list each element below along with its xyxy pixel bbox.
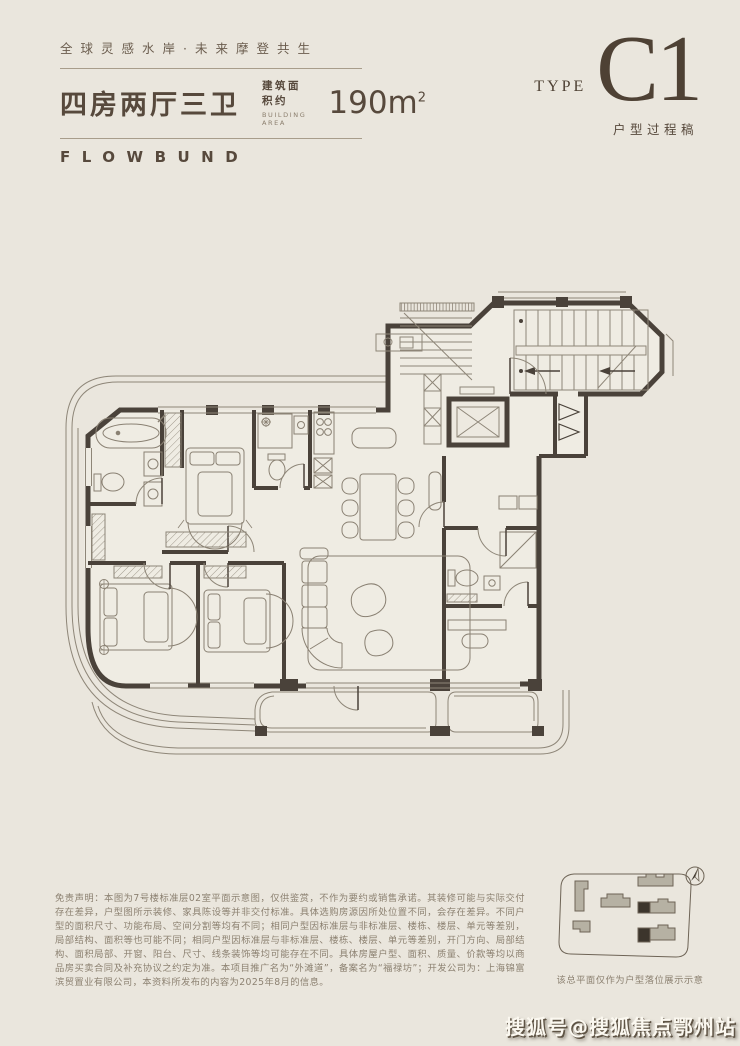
- divider-rule-bottom: [60, 138, 362, 139]
- unit-title: 四房两厅三卫: [60, 83, 240, 122]
- divider-rule-top: [60, 68, 362, 69]
- area-label-cn: 建筑面积约: [262, 78, 306, 108]
- balcony: [255, 692, 538, 732]
- building-5: [650, 899, 675, 913]
- type-value: C1: [596, 26, 700, 112]
- site-plan: [552, 864, 708, 972]
- building-3: [573, 921, 590, 932]
- type-note: 户型过程稿: [528, 119, 698, 138]
- building-6-highlight: [638, 928, 650, 942]
- area-value: 190m2: [328, 85, 426, 121]
- unit-footprint: [88, 303, 662, 686]
- building-5-highlight: [638, 902, 650, 913]
- compass-icon: [686, 867, 704, 885]
- header: 全球灵感水岸·未来摩登共生 四房两厅三卫 建筑面积约 BUILDING AREA…: [60, 38, 372, 166]
- site-buildings: [573, 874, 675, 942]
- building-2: [601, 894, 630, 907]
- building-1: [575, 881, 588, 911]
- area-labels: 建筑面积约 BUILDING AREA: [262, 78, 306, 127]
- disclaimer-text: 免责声明：本图为7号楼标准层02室平面示意图，仅供鉴赏，不作为要约或销售承诺。其…: [55, 892, 525, 990]
- master-wardrobe: [166, 532, 246, 547]
- type-label: TYPE: [534, 78, 586, 96]
- tagline: 全球灵感水岸·未来摩登共生: [60, 38, 372, 57]
- master-closet: [165, 413, 181, 467]
- area-label-en: BUILDING AREA: [262, 111, 306, 127]
- building-4: [638, 874, 673, 886]
- floor-plan: [58, 276, 682, 770]
- brand-name: FLOWBUND: [60, 148, 372, 166]
- type-badge: TYPE C1 户型过程稿: [528, 26, 700, 138]
- site-plan-caption: 该总平面仅作为户型落位展示示意: [544, 972, 716, 986]
- title-row: 四房两厅三卫 建筑面积约 BUILDING AREA 190m2: [60, 78, 372, 127]
- building-6: [650, 925, 675, 940]
- type-line: TYPE C1: [528, 26, 700, 112]
- page: 全球灵感水岸·未来摩登共生 四房两厅三卫 建筑面积约 BUILDING AREA…: [0, 0, 740, 1046]
- watermark: 搜狐号@搜狐焦点鄂州站: [505, 1011, 736, 1040]
